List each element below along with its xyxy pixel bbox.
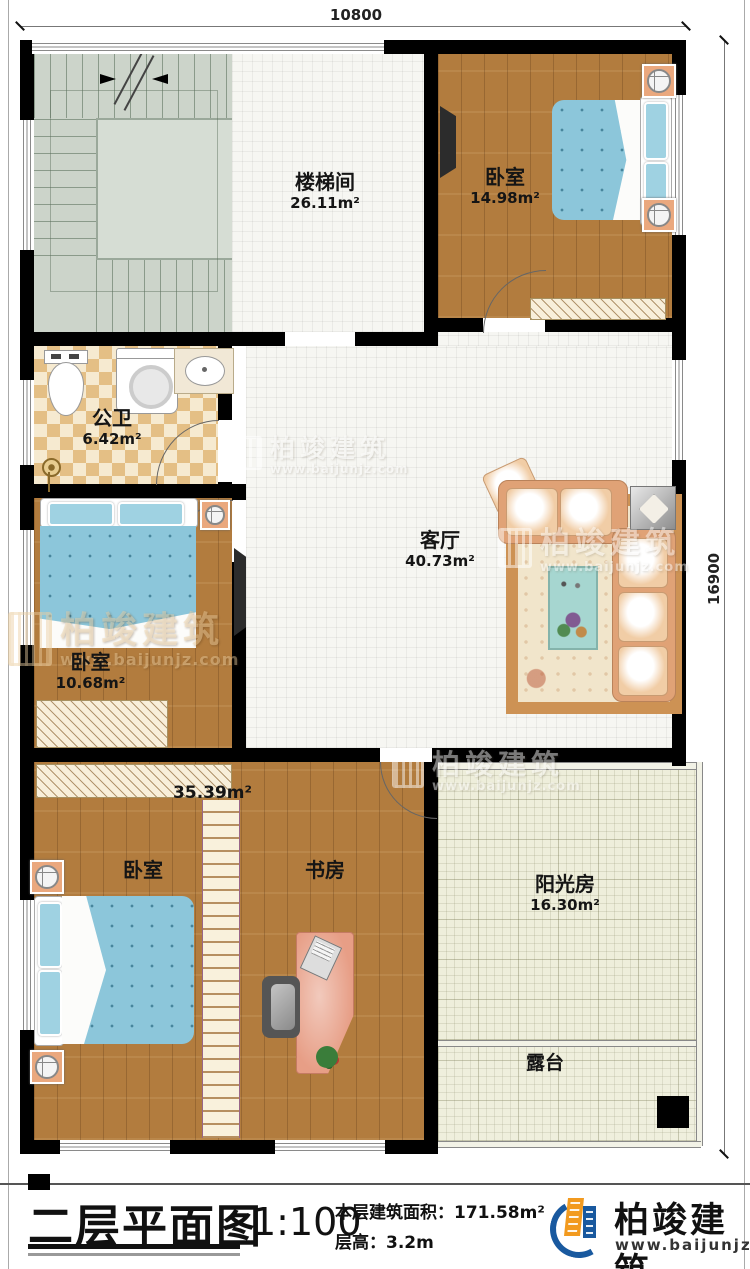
room-label-bathroom: 公卫 6.42m² [42,406,182,448]
door-opening-study [380,748,432,762]
room-area-bedroom-bottom: 35.39m² [145,783,280,803]
nightstand [642,198,676,232]
title-corner-square [28,1174,50,1190]
tv [234,548,246,636]
window [60,1140,170,1154]
pillow [118,502,184,526]
title-underline-secondary [28,1253,240,1256]
room-area: 35.39m² [145,783,280,803]
lamp-icon [647,203,671,227]
stair-guide-outline [50,90,218,292]
table-lamp-icon [639,494,669,524]
pillow [48,502,114,526]
window [275,1140,385,1154]
wall-bedroom-top-bottom [438,318,686,332]
nightstand [30,860,64,894]
room-label-bedroom-mid: 卧室 10.68m² [18,650,163,692]
room-label-sunroom: 阳光房 16.30m² [495,872,635,914]
window [672,360,686,460]
living-floor [438,332,672,346]
sofa-cushion [618,538,668,588]
sofa-cushion [506,488,558,536]
pillow [38,902,62,968]
room-area: 26.11m² [255,194,395,212]
sofa-cushion [618,592,668,642]
window [32,40,384,54]
lamp-icon [35,1055,59,1079]
closet-hanger-partition [202,800,240,1138]
company-url: www.baijunjz.com [615,1236,750,1254]
floor-height-line: 层高：3.2m [335,1228,434,1253]
vanity-counter [174,348,234,394]
washing-machine [116,348,178,414]
room-name: 公卫 [42,406,182,430]
room-name: 卧室 [18,650,163,674]
washer-door [129,365,173,409]
pillow [644,102,668,160]
room-label-stairwell: 楼梯间 26.11m² [255,170,395,212]
room-name: 书房 [265,858,385,882]
sheet-border-left [8,0,9,1269]
nightstand [30,1050,64,1084]
coffee-table [548,566,598,650]
sofa-cushion [618,646,668,696]
stair-direction-arrow [100,74,116,84]
title-separator-line [0,1183,750,1185]
plant [316,1046,338,1068]
pillow [38,970,62,1036]
floor-area-line: 本层建筑面积：171.58m² [335,1198,545,1223]
room-label-terrace: 露台 [485,1052,605,1075]
wall-bathroom-bottom [20,484,246,498]
sheet-border-right [744,0,745,1269]
room-name: 楼梯间 [255,170,395,194]
floor-plan-sheet: 柏竣建筑 www.baijunjz.com 柏竣建筑 www.baijunjz.… [0,0,750,1269]
room-area: 6.42m² [42,430,182,448]
stair-direction-arrow [152,74,168,84]
wardrobe-bedroom-mid [36,700,168,748]
room-label-living: 客厅 40.73m² [370,528,510,570]
sunroom-top-rail [438,762,701,770]
office-chair [262,976,300,1038]
room-area: 16.30m² [495,896,635,914]
opening-stairwell [285,332,355,346]
company-logo-icon [548,1194,608,1254]
floor-drain-stem [48,472,50,492]
window [20,380,34,465]
lamp-icon [205,505,225,525]
corner-table [630,486,676,530]
wall-stairwell-bottom [20,332,438,346]
window [20,900,34,1030]
wall-mid-horizontal [20,748,686,762]
room-area: 10.68m² [18,674,163,692]
toilet-button [51,354,61,359]
logo-building-blue [583,1206,596,1238]
terrace-bottom-rail [438,1141,701,1148]
room-area: 40.73m² [370,552,510,570]
nightstand [642,64,676,98]
company-name: 柏竣建筑 [614,1192,750,1269]
lamp-icon [35,865,59,889]
room-area: 14.98m² [435,189,575,207]
laptop-screen [311,941,335,962]
lamp-icon [647,69,671,93]
floor-drain [42,458,61,477]
room-label-bedroom-bottom: 卧室 [83,858,203,882]
terrace-column [657,1096,689,1128]
room-label-study: 书房 [265,858,385,882]
door-opening-bathroom [218,420,232,482]
title-underline [28,1244,240,1249]
dimension-line-top [20,26,686,27]
terrace-right-rail [696,762,703,1146]
faucet-icon [202,367,207,372]
room-label-bedroom-top: 卧室 14.98m² [435,165,575,207]
nightstand [200,500,230,530]
chair-seat [271,984,295,1030]
room-name: 露台 [485,1052,605,1075]
washer-panel-line [117,358,177,359]
sofa-cushion [560,488,612,536]
window [20,530,34,645]
dimension-width: 10800 [316,6,396,24]
toilet-button [69,354,79,359]
window [20,120,34,250]
dimension-line-right [724,40,725,1154]
terrace-divider-rail [438,1040,696,1047]
room-name: 阳光房 [495,872,635,896]
room-name: 卧室 [83,858,203,882]
room-name: 卧室 [435,165,575,189]
dimension-height: 16900 [705,547,723,611]
room-name: 客厅 [370,528,510,552]
wardrobe-bedroom-top [530,298,666,320]
